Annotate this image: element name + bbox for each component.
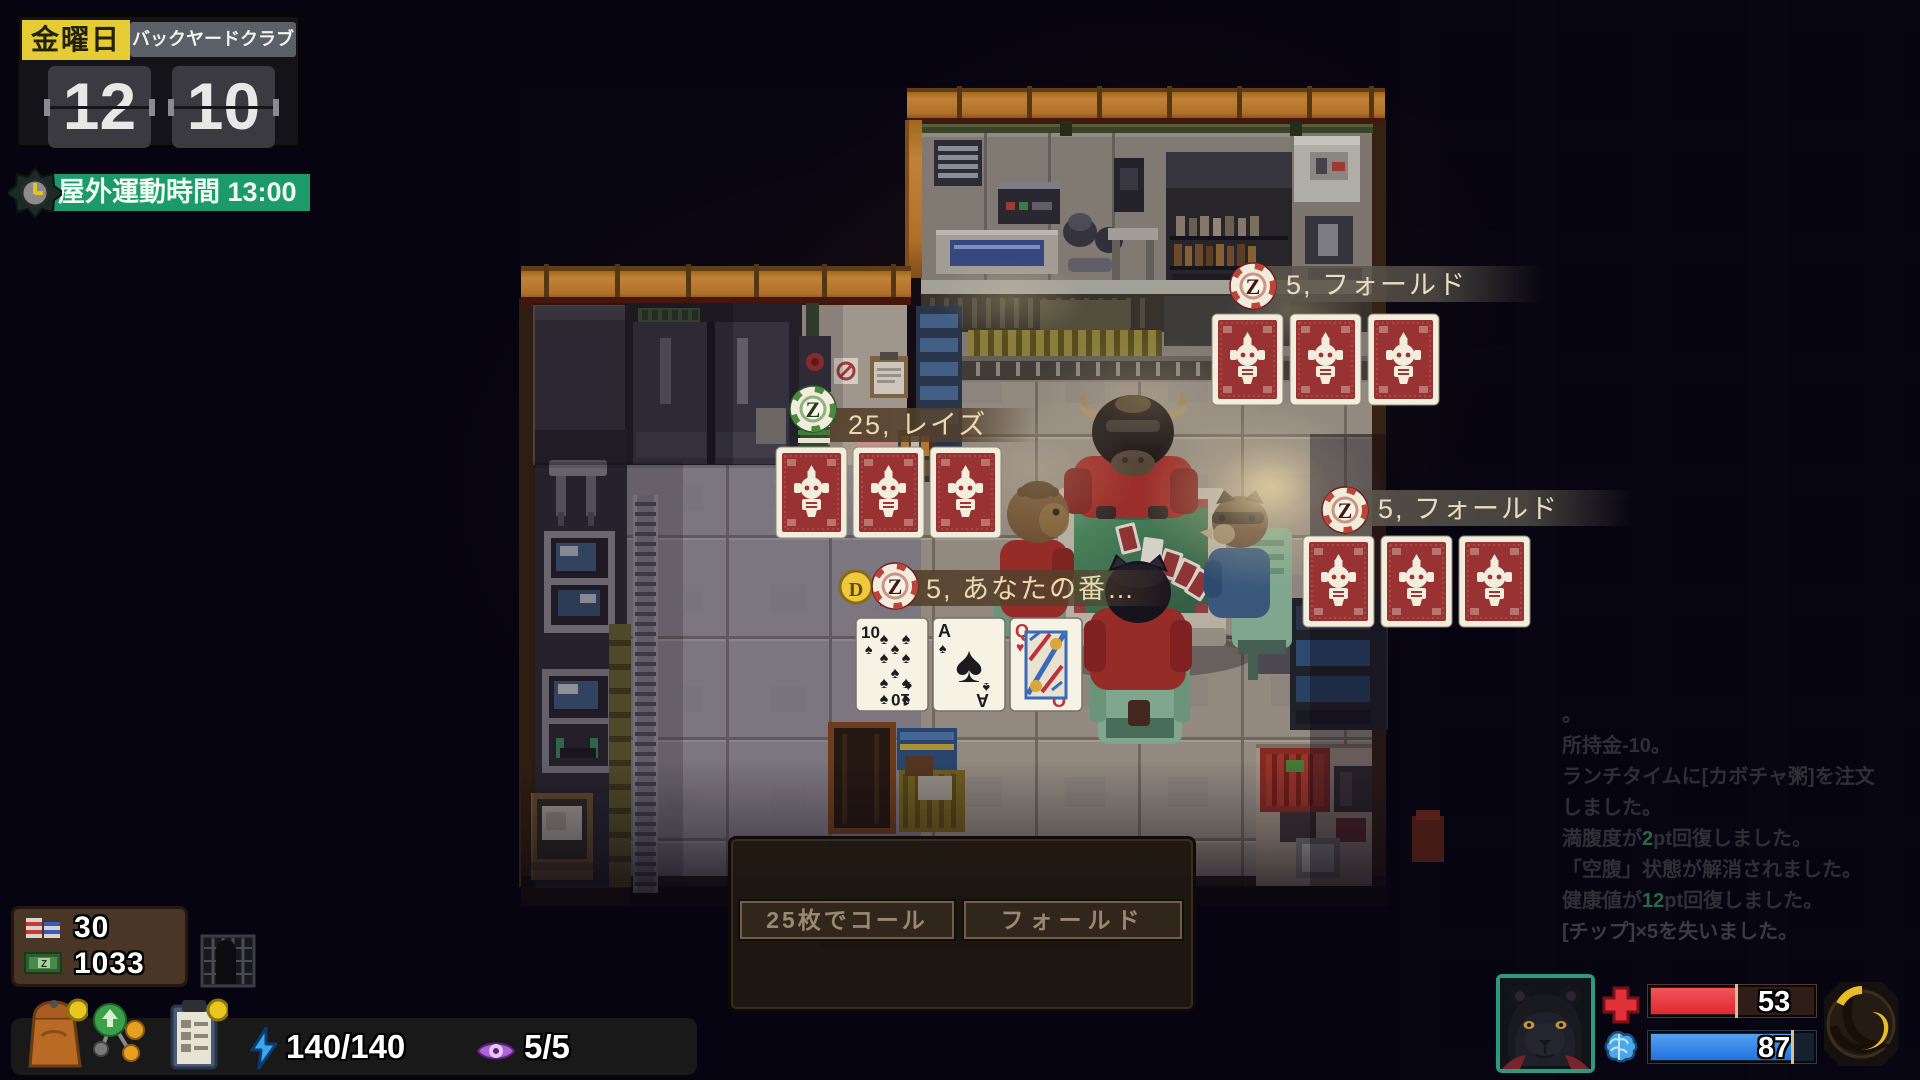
svg-text:D: D [849, 579, 863, 601]
svg-text:5, フォールド: 5, フォールド [1378, 494, 1559, 524]
svg-text:♠: ♠ [880, 691, 889, 708]
svg-text:A: A [938, 621, 951, 641]
svg-text:♠: ♠ [865, 641, 873, 657]
svg-text:5, フォールド: 5, フォールド [1286, 270, 1467, 300]
svg-text:♠: ♠ [982, 680, 990, 696]
svg-text:♠: ♠ [902, 675, 911, 692]
svg-text:♠: ♠ [880, 650, 889, 667]
svg-text:♠: ♠ [880, 675, 889, 692]
svg-text:♠: ♠ [902, 691, 911, 708]
svg-text:♥: ♥ [1016, 639, 1024, 655]
svg-text:♠: ♠ [939, 640, 947, 656]
svg-text:♠: ♠ [891, 641, 900, 658]
svg-text:10: 10 [861, 623, 880, 642]
svg-text:5, あなたの番…: 5, あなたの番… [926, 574, 1136, 604]
svg-text:25, レイズ: 25, レイズ [848, 410, 987, 440]
svg-text:♠: ♠ [880, 631, 889, 648]
svg-text:Z: Z [41, 959, 47, 970]
svg-text:♠: ♠ [955, 636, 983, 694]
svg-text:♠: ♠ [891, 665, 900, 682]
svg-text:♠: ♠ [902, 631, 911, 648]
svg-text:♠: ♠ [902, 650, 911, 667]
